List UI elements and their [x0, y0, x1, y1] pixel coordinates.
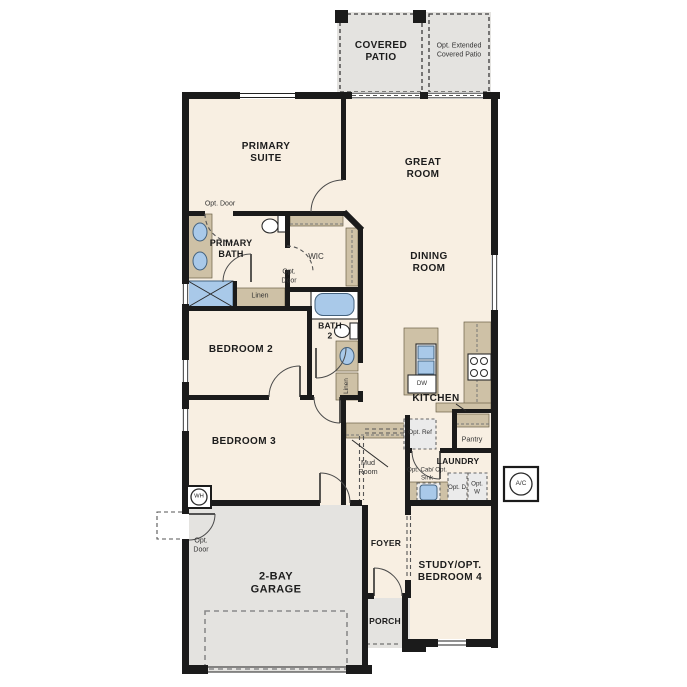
bathtub [315, 294, 354, 316]
floor-plan: COVERED PATIO Opt. Extended Covered Pati… [0, 0, 687, 687]
room-label-mud-room: Mud Room [353, 459, 383, 477]
room-label-covered-patio: COVERED PATIO [350, 40, 412, 64]
linen-label-2: Linen [343, 378, 351, 394]
opt-door-label-garage: Opt. Door [188, 537, 214, 554]
room-label-bath2: BATH 2 [315, 321, 345, 342]
room-label-garage: 2-BAY GARAGE [236, 571, 316, 598]
room-label-great-room: GREAT ROOM [395, 157, 451, 181]
room-label-dining-room: DINING ROOM [401, 251, 457, 275]
room-label-primary-suite: PRIMARY SUITE [231, 141, 301, 165]
range [468, 354, 491, 380]
wh-label: WH [194, 493, 204, 500]
room-label-bedroom3: BEDROOM 3 [212, 436, 276, 448]
room-label-opt-extended-patio: Opt. Extended Covered Patio [428, 42, 490, 59]
opt-dryer-label: Opt. D [448, 484, 466, 492]
room-label-porch: PORCH [369, 616, 401, 626]
room-label-laundry: LAUNDRY [437, 456, 480, 466]
room-label-kitchen: KITCHEN [412, 393, 459, 405]
pantry-shelf [456, 414, 489, 427]
opt-garage-door-stoop [157, 512, 183, 539]
room-label-foyer: FOYER [371, 538, 401, 548]
floor-plan-drawing [0, 0, 687, 687]
room-label-bedroom2: BEDROOM 2 [209, 344, 273, 356]
toilet [350, 323, 358, 339]
pantry-label: Pantry [462, 436, 483, 445]
kitchen-sink [418, 361, 434, 374]
room-label-wic: WIC [308, 252, 324, 262]
laundry-sink [420, 485, 437, 500]
dishwasher-label: DW [417, 380, 427, 388]
room-label-primary-bath: PRIMARY BATH [203, 238, 259, 260]
opt-door-label-wic: Opt. Door [276, 268, 302, 285]
kitchen-sink [418, 346, 434, 359]
opt-washer-label: Opt. W [468, 480, 486, 495]
opt-ref-label: Opt. Ref [407, 429, 433, 437]
patio-post [335, 10, 348, 23]
toilet [262, 219, 278, 233]
opt-door-label-suite: Opt. Door [205, 201, 235, 210]
foyer-area [362, 505, 412, 600]
opt-cab-sink-label: Opt. Cab/ Opt. Sink [406, 466, 448, 481]
patio-post [413, 10, 426, 23]
room-label-study-bedroom4: STUDY/OPT. BEDROOM 4 [407, 560, 493, 584]
ac-label: A/C [516, 480, 527, 488]
mud-room-closet [346, 423, 405, 438]
linen-label-1: Linen [251, 293, 268, 302]
